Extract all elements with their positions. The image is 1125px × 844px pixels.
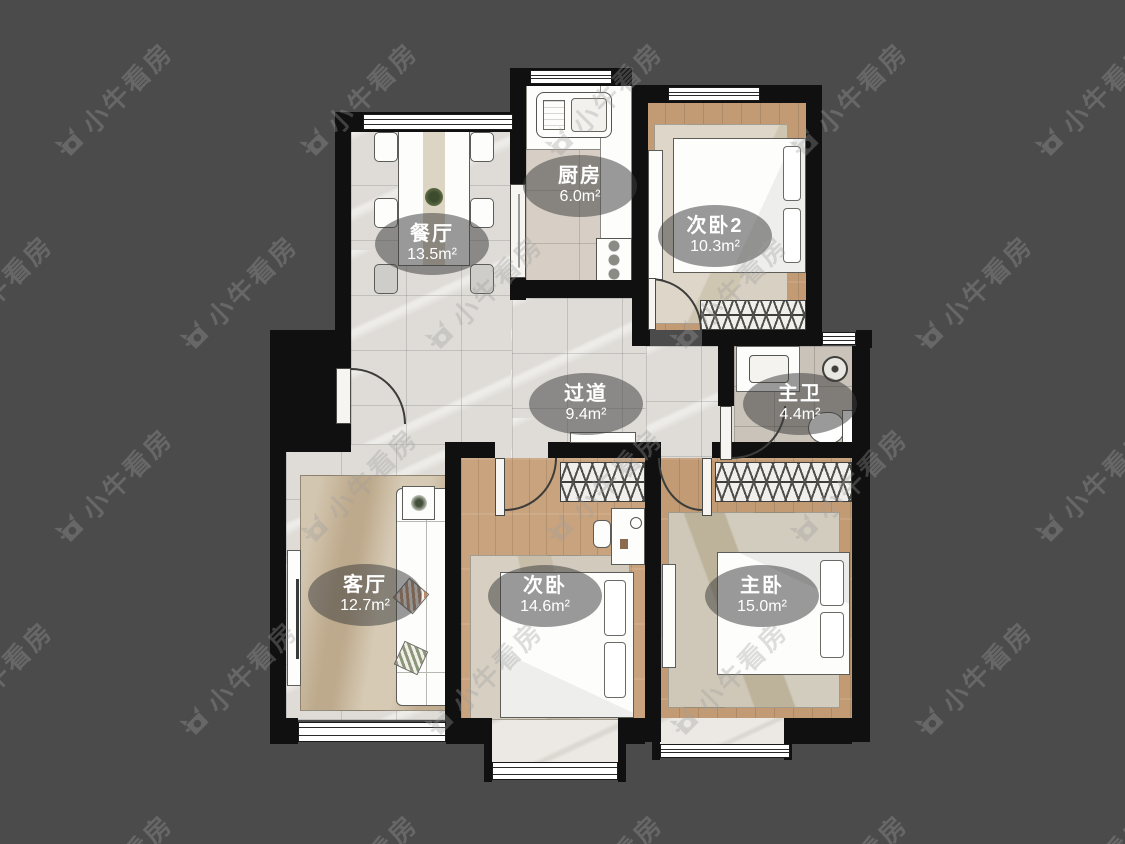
wall-segment bbox=[484, 718, 492, 782]
window-living bbox=[298, 722, 446, 742]
wall-segment bbox=[510, 280, 632, 298]
watermark-text: 小牛看房 bbox=[562, 805, 670, 844]
wall-segment bbox=[510, 132, 526, 184]
room-name: 主卧 bbox=[740, 575, 784, 598]
watermark: 小牛看房 bbox=[47, 419, 181, 553]
bath-door-leaf bbox=[720, 406, 732, 460]
wall-segment bbox=[652, 718, 660, 760]
sink-basin bbox=[571, 98, 607, 132]
dining-chair bbox=[374, 132, 398, 162]
master-pillow bbox=[820, 560, 844, 606]
floor-bay-master bbox=[660, 718, 790, 744]
watermark: 小牛看房 bbox=[47, 805, 181, 844]
watermark-text: 小牛看房 bbox=[932, 226, 1040, 334]
watermark-text: 小牛看房 bbox=[932, 612, 1040, 720]
kitchen-sink bbox=[536, 92, 612, 138]
wall-entry-block bbox=[270, 330, 336, 452]
room-label-bedroom: 次卧 14.6m² bbox=[488, 565, 602, 627]
master-wardrobe bbox=[715, 462, 852, 502]
floorplan-screenshot: 餐厅 13.5m² 厨房 6.0m² 次卧2 10.3m² 过道 9.4m² 主… bbox=[0, 0, 1125, 844]
watermark: 小牛看房 bbox=[47, 33, 181, 167]
wall-segment bbox=[852, 442, 870, 742]
window-bath bbox=[822, 332, 856, 345]
room-area: 13.5m² bbox=[407, 246, 457, 264]
watermark-text: 小牛看房 bbox=[72, 805, 180, 844]
sink-basin bbox=[543, 100, 565, 130]
wall-segment bbox=[270, 718, 298, 744]
watermark-text: 小牛看房 bbox=[1052, 33, 1125, 141]
watermark: 小牛看房 bbox=[0, 612, 61, 746]
wall-segment bbox=[718, 330, 822, 346]
watermark: 小牛看房 bbox=[782, 805, 916, 844]
window-bedroom2 bbox=[668, 87, 760, 101]
room-name: 客厅 bbox=[343, 574, 387, 597]
watermark-text: 小牛看房 bbox=[0, 612, 61, 720]
window-dining bbox=[363, 114, 513, 130]
window-bay-bedroom bbox=[492, 762, 618, 780]
bull-logo-icon bbox=[1029, 508, 1071, 550]
watermark: 小牛看房 bbox=[1027, 805, 1125, 844]
entry-door-leaf bbox=[336, 368, 351, 424]
watermark: 小牛看房 bbox=[292, 805, 426, 844]
watermark-text: 小牛看房 bbox=[1052, 805, 1125, 844]
room-label-master-bath: 主卫 4.4m² bbox=[743, 373, 857, 435]
room-name: 厨房 bbox=[558, 165, 602, 188]
plant bbox=[411, 495, 427, 511]
dining-chair bbox=[470, 132, 494, 162]
room-area: 6.0m² bbox=[560, 188, 601, 206]
wall-segment bbox=[335, 112, 351, 374]
bedroom-door-leaf bbox=[495, 458, 505, 516]
wall-segment bbox=[645, 442, 661, 742]
bedroom2-door-leaf bbox=[648, 278, 656, 330]
wall-segment bbox=[632, 85, 648, 330]
floor-bay-bedroom bbox=[492, 718, 618, 762]
room-label-kitchen: 厨房 6.0m² bbox=[523, 155, 637, 217]
desk-lamp bbox=[630, 517, 642, 529]
wall-segment bbox=[632, 330, 650, 346]
watermark: 小牛看房 bbox=[0, 226, 61, 360]
room-area: 15.0m² bbox=[737, 598, 787, 616]
wall-segment bbox=[806, 85, 822, 346]
side-table-plant bbox=[402, 486, 435, 520]
room-area: 9.4m² bbox=[566, 406, 607, 424]
wall-segment bbox=[548, 442, 658, 458]
wall-segment bbox=[446, 718, 461, 744]
watermark-text: 小牛看房 bbox=[807, 805, 915, 844]
window-bay-master bbox=[660, 744, 790, 758]
wall-segment bbox=[335, 424, 351, 452]
bedroom-wardrobe bbox=[560, 462, 645, 502]
kitchen-sliding-door bbox=[510, 184, 526, 278]
room-area: 12.7m² bbox=[340, 597, 390, 615]
room-area: 10.3m² bbox=[690, 238, 740, 256]
watermark-text: 小牛看房 bbox=[1052, 419, 1125, 527]
room-area: 4.4m² bbox=[780, 406, 821, 424]
table-plant bbox=[425, 188, 443, 206]
desk-chair bbox=[593, 520, 611, 548]
dining-chair bbox=[374, 264, 398, 294]
master-door-leaf bbox=[702, 458, 712, 516]
master-cabinet bbox=[662, 564, 676, 668]
bedroom2-pillow bbox=[783, 208, 801, 263]
master-pillow bbox=[820, 612, 844, 658]
wall-segment bbox=[270, 440, 286, 742]
room-name: 次卧 bbox=[523, 575, 567, 598]
wall-segment bbox=[718, 346, 734, 406]
desk-item bbox=[620, 539, 628, 549]
room-name: 过道 bbox=[564, 383, 608, 406]
room-label-living: 客厅 12.7m² bbox=[308, 564, 422, 626]
dining-chair bbox=[470, 264, 494, 294]
wall-segment bbox=[618, 718, 626, 782]
room-name: 餐厅 bbox=[410, 223, 454, 246]
window-kitchen bbox=[530, 70, 612, 84]
bedroom-pillow bbox=[604, 580, 626, 636]
room-label-master-bedroom: 主卧 15.0m² bbox=[705, 565, 819, 627]
bull-logo-icon bbox=[1029, 122, 1071, 164]
bedroom2-pillow bbox=[783, 146, 801, 201]
room-label-bedroom2: 次卧2 10.3m² bbox=[658, 205, 772, 267]
tv bbox=[296, 579, 299, 659]
watermark: 小牛看房 bbox=[1027, 419, 1125, 553]
bull-logo-icon bbox=[909, 701, 951, 743]
room-name: 主卫 bbox=[778, 383, 822, 406]
watermark: 小牛看房 bbox=[907, 226, 1041, 360]
floorplan: 餐厅 13.5m² 厨房 6.0m² 次卧2 10.3m² 过道 9.4m² 主… bbox=[270, 68, 872, 784]
watermark: 小牛看房 bbox=[907, 612, 1041, 746]
bedroom2-cabinet bbox=[648, 150, 663, 280]
bedroom2-wardrobe bbox=[700, 300, 806, 330]
bull-logo-icon bbox=[49, 122, 91, 164]
tv-stand bbox=[287, 550, 301, 686]
bull-logo-icon bbox=[174, 315, 216, 357]
room-label-hallway: 过道 9.4m² bbox=[529, 373, 643, 435]
bull-logo-icon bbox=[49, 508, 91, 550]
watermark-text: 小牛看房 bbox=[317, 805, 425, 844]
bull-logo-icon bbox=[174, 701, 216, 743]
watermark-text: 小牛看房 bbox=[0, 226, 61, 334]
watermark-text: 小牛看房 bbox=[72, 419, 180, 527]
bull-logo-icon bbox=[909, 315, 951, 357]
watermark: 小牛看房 bbox=[1027, 33, 1125, 167]
wall-segment bbox=[790, 718, 852, 744]
wall-segment bbox=[445, 442, 461, 742]
room-name: 次卧2 bbox=[686, 215, 743, 238]
room-label-dining: 餐厅 13.5m² bbox=[375, 213, 489, 275]
watermark: 小牛看房 bbox=[537, 805, 671, 844]
bedroom-pillow bbox=[604, 642, 626, 698]
watermark-text: 小牛看房 bbox=[72, 33, 180, 141]
room-area: 14.6m² bbox=[520, 598, 570, 616]
bedroom-desk bbox=[611, 508, 645, 565]
